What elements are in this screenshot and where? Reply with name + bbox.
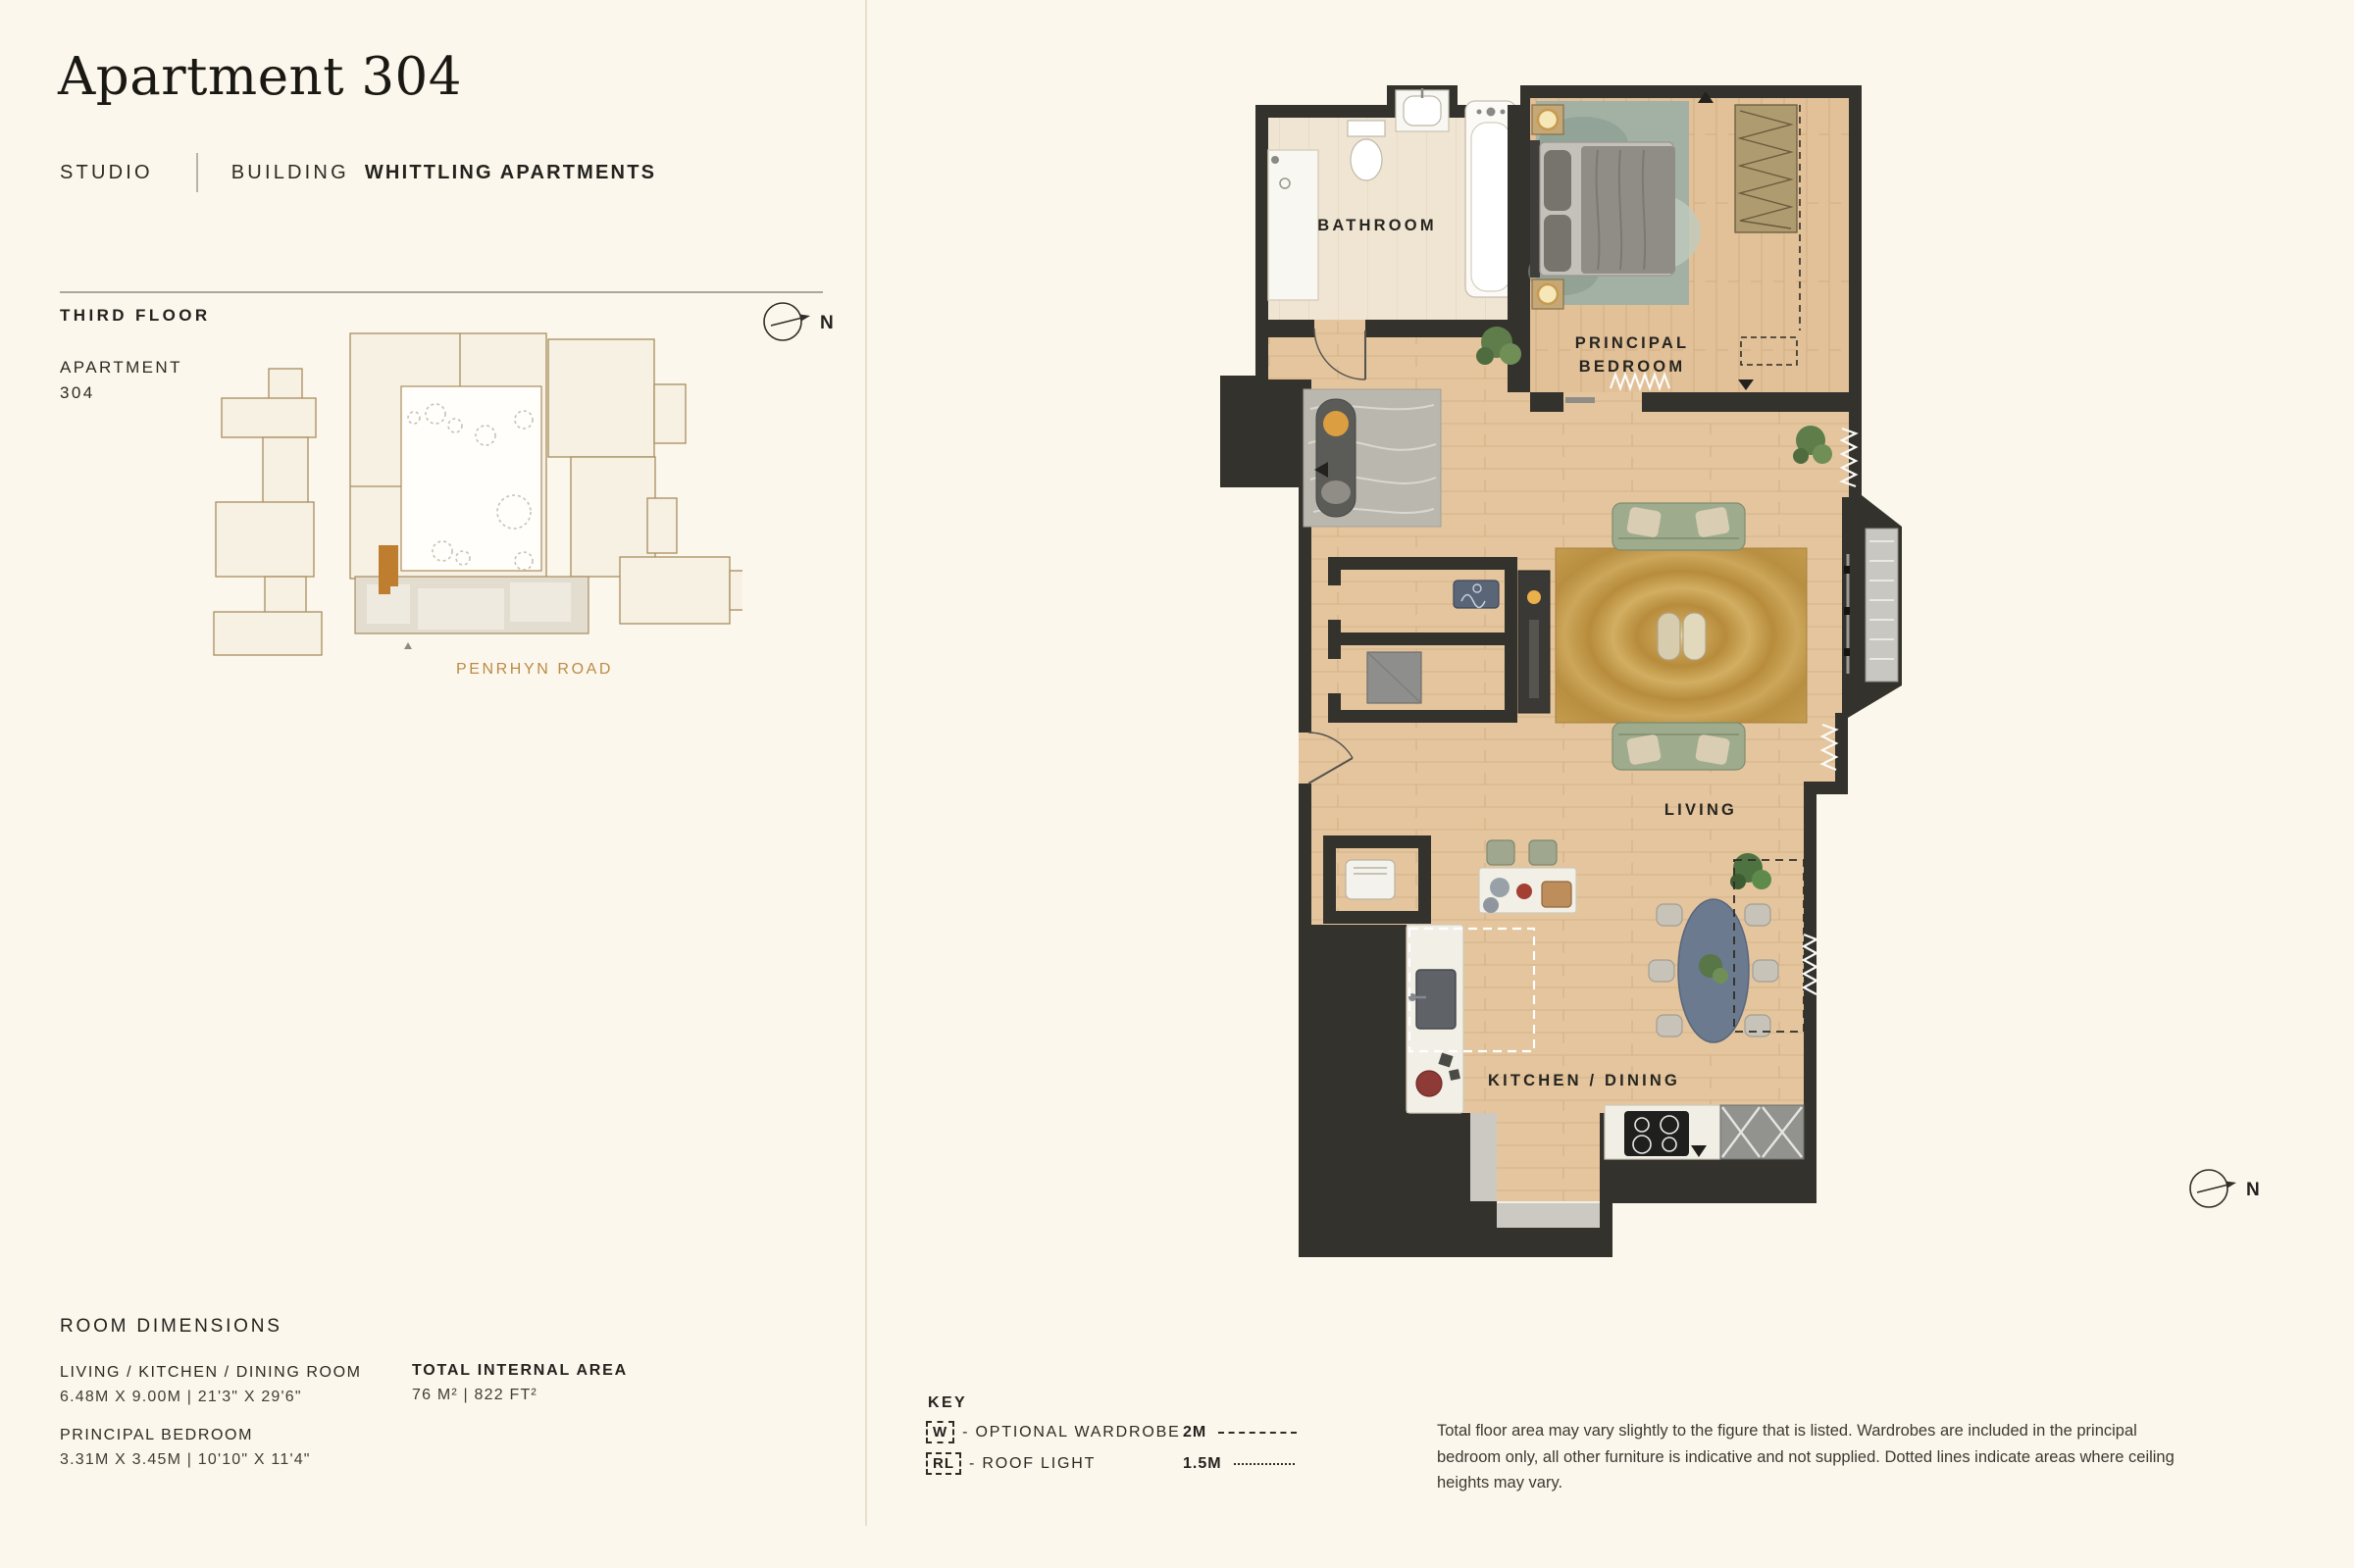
room-1-name: LIVING / KITCHEN / DINING ROOM — [60, 1364, 362, 1382]
floorplan-page: Apartment 304 STUDIO BUILDING WHITTLING … — [0, 0, 2354, 1568]
key-plan — [208, 329, 742, 673]
vestibule-side-strip — [1470, 1113, 1497, 1201]
toilet-cistern — [1348, 121, 1385, 136]
scale-row-2m: 2M — [1183, 1424, 1297, 1442]
north-letter: N — [820, 313, 835, 333]
bed-headboard — [1530, 140, 1540, 278]
north-circle — [2190, 1170, 2227, 1207]
total-area-heading: TOTAL INTERNAL AREA — [412, 1362, 628, 1380]
shower — [1268, 150, 1318, 300]
basin — [1404, 96, 1441, 126]
coffee-table — [1683, 613, 1706, 660]
room-dimensions-heading: ROOM DIMENSIONS — [60, 1316, 282, 1338]
disclaimer-text: Total floor area may vary slightly to th… — [1437, 1418, 2202, 1496]
living-label: LIVING — [1664, 801, 1737, 819]
courtyard — [401, 386, 541, 571]
shower-head-icon — [1271, 156, 1279, 164]
sink — [1416, 970, 1456, 1029]
floor-label: THIRD FLOOR — [60, 306, 211, 326]
unit-type-label: STUDIO — [60, 162, 153, 184]
appliance — [1346, 860, 1395, 899]
north-arrow-plan: N — [2168, 1161, 2285, 1216]
bedroom-door-track — [1565, 397, 1595, 403]
coffee-table — [1658, 613, 1680, 660]
room-2-name: PRINCIPAL BEDROOM — [60, 1427, 253, 1444]
kitchen-dining-label: KITCHEN / DINING — [1488, 1072, 1680, 1089]
apartment-number: 304 — [60, 380, 95, 406]
stool — [1487, 840, 1514, 865]
bathroom-label: BATHROOM — [1317, 217, 1437, 234]
duvet — [1581, 146, 1675, 274]
room-1-dims: 6.48M X 9.00M | 21'3" X 29'6" — [60, 1389, 302, 1406]
subtitle-row: STUDIO BUILDING WHITTLING APARTMENTS — [60, 153, 656, 192]
cushion-icon — [1323, 411, 1349, 436]
pillow-icon — [1544, 150, 1571, 211]
utility-room — [1323, 835, 1431, 924]
hall-closets — [1328, 557, 1550, 723]
floor-plan: BATHROOM — [1220, 85, 1907, 1262]
legend-row-wardrobe: W - OPTIONAL WARDROBE — [926, 1421, 1181, 1443]
scale-1-5m-label: 1.5M — [1183, 1455, 1222, 1473]
appliance-unit — [1720, 1105, 1804, 1159]
total-area-value: 76 M² | 822 FT² — [412, 1387, 537, 1404]
scale-1-5m-dotted-line — [1234, 1463, 1295, 1465]
cushion-icon — [1695, 733, 1730, 765]
wardrobe-symbol: W — [926, 1421, 954, 1443]
north-circle — [764, 303, 801, 340]
lamp-icon — [1527, 590, 1541, 604]
scale-row-1-5m: 1.5M — [1183, 1455, 1295, 1473]
bathroom: BATHROOM — [1268, 85, 1516, 320]
bedroom-label-line1: PRINCIPAL — [1575, 334, 1690, 352]
bathroom-wall — [1255, 320, 1520, 337]
cushion-icon — [1626, 506, 1662, 537]
rooflight-symbol: RL — [926, 1452, 961, 1475]
fruit-bowl-icon — [1416, 1071, 1442, 1096]
stool — [1529, 840, 1557, 865]
street-label: PENRHYN ROAD — [353, 661, 716, 679]
north-letter: N — [2246, 1180, 2261, 1200]
building-outline-west — [214, 369, 322, 655]
cushion-icon — [1626, 733, 1662, 765]
apartment-label: APARTMENT — [60, 355, 182, 380]
wardrobe-label: - OPTIONAL WARDROBE — [962, 1424, 1180, 1442]
bedroom-label-line2: BEDROOM — [1579, 358, 1686, 376]
rooflight-label: - ROOF LIGHT — [969, 1455, 1096, 1473]
room-2-dims: 3.31M X 3.45M | 10'10" X 11'4" — [60, 1451, 311, 1469]
bedside-lamp-icon — [1538, 110, 1558, 129]
header-rule — [60, 291, 823, 293]
page-title: Apartment 304 — [58, 47, 462, 107]
cushion-icon — [1695, 506, 1730, 537]
pillow-icon — [1544, 215, 1571, 272]
vestibule-mat — [1497, 1202, 1600, 1228]
north-arrow-header: N — [742, 294, 859, 349]
building-name: WHITTLING APARTMENTS — [365, 162, 656, 184]
toilet-icon — [1351, 139, 1382, 180]
bowl-icon — [1516, 884, 1532, 899]
legend-row-rooflight: RL - ROOF LIGHT — [926, 1452, 1096, 1475]
chopping-board — [1542, 882, 1571, 907]
bedside-lamp-icon — [1538, 284, 1558, 304]
subtitle-divider — [196, 153, 198, 192]
bath-tap-icon — [1487, 108, 1496, 117]
entry-door-opening — [1299, 733, 1311, 784]
scale-2m-label: 2M — [1183, 1424, 1206, 1442]
panel-divider — [865, 0, 867, 1526]
entrance-marker-icon — [404, 642, 412, 649]
plate-icon — [1490, 878, 1510, 897]
sunburst-rug — [1556, 548, 1807, 723]
scale-2m-dashed-line — [1218, 1432, 1297, 1434]
building-label: BUILDING — [231, 162, 349, 184]
legend-heading: KEY — [928, 1394, 967, 1412]
